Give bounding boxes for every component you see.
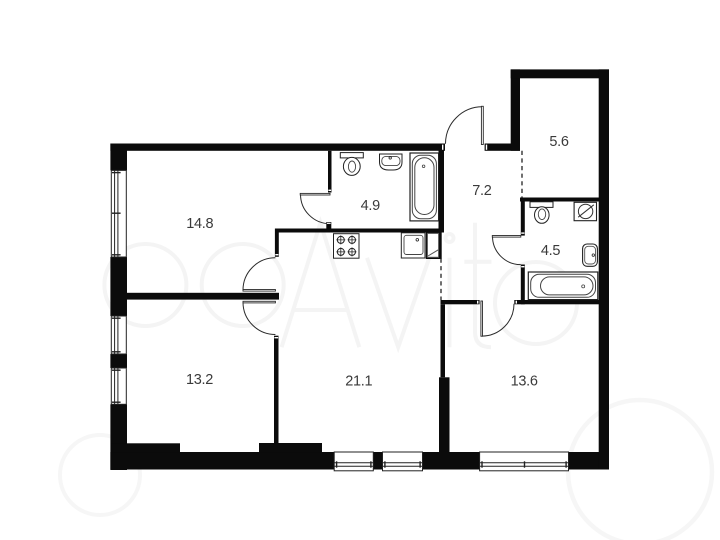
svg-text:21.1: 21.1 xyxy=(345,374,372,390)
svg-text:13.2: 13.2 xyxy=(186,372,213,388)
svg-text:14.8: 14.8 xyxy=(186,216,213,232)
svg-text:4.9: 4.9 xyxy=(361,198,380,214)
svg-text:13.6: 13.6 xyxy=(511,374,538,390)
svg-text:4.5: 4.5 xyxy=(541,243,560,259)
svg-text:5.6: 5.6 xyxy=(549,134,568,150)
svg-text:7.2: 7.2 xyxy=(472,183,491,199)
